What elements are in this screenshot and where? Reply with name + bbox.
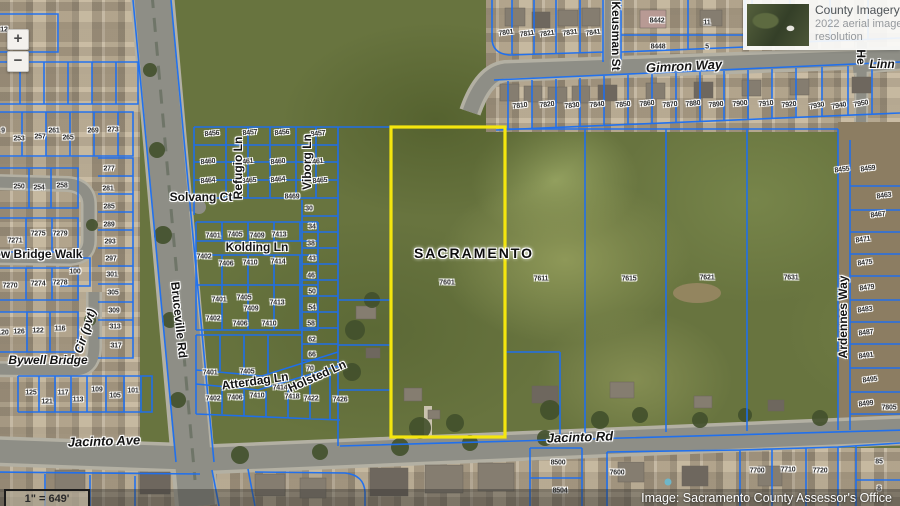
aerial-imagery-thumbnail[interactable] (747, 4, 809, 46)
map-canvas[interactable]: 1292532572612652692732502542582772812852… (0, 0, 900, 506)
selected-parcel-number: 7601 (439, 280, 455, 287)
imagery-info-panel: County Imagery 2022 2022 aerial imagery … (743, 0, 900, 50)
imagery-panel-title: County Imagery 2022 (815, 3, 900, 18)
zoom-out-button[interactable]: − (7, 51, 29, 72)
city-label: SACRAMENTO (414, 245, 534, 261)
zoom-in-button[interactable]: + (7, 29, 29, 50)
imagery-text-block: County Imagery 2022 2022 aerial imagery … (815, 3, 900, 44)
imagery-panel-subtitle-line1: 2022 aerial imagery at 3 (815, 18, 900, 31)
attribution-text: Image: Sacramento County Assessor's Offi… (641, 491, 892, 505)
zoom-control: + − (7, 29, 29, 73)
dirt-right-zone (838, 122, 900, 446)
imagery-panel-subtitle-line2: resolution (815, 31, 900, 44)
residential-left-zone (0, 0, 140, 506)
scale-indicator: 1" = 649' (4, 489, 90, 506)
attribution-bar: Image: Sacramento County Assessor's Offi… (0, 489, 900, 506)
